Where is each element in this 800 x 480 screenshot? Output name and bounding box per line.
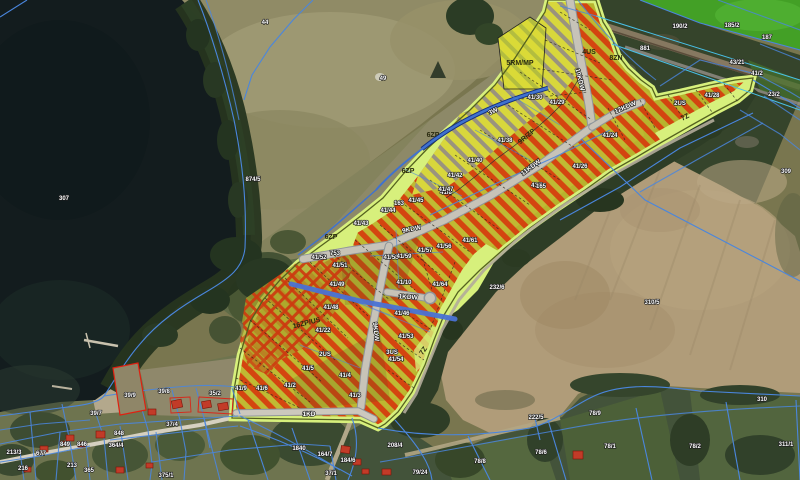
svg-text:41/2: 41/2: [284, 383, 296, 389]
svg-text:187: 187: [762, 35, 773, 41]
svg-text:78/2: 78/2: [689, 444, 701, 450]
svg-text:2US: 2US: [674, 101, 686, 107]
svg-text:41/30: 41/30: [527, 95, 543, 101]
svg-text:49: 49: [380, 76, 387, 82]
svg-text:41/6: 41/6: [256, 386, 268, 392]
svg-text:677: 677: [36, 451, 47, 457]
svg-text:41/5: 41/5: [302, 366, 314, 372]
svg-text:41/54: 41/54: [388, 357, 404, 363]
svg-text:849: 849: [60, 442, 71, 448]
svg-text:881: 881: [640, 46, 651, 52]
svg-text:41/64: 41/64: [432, 282, 448, 288]
svg-text:41/46: 41/46: [394, 311, 410, 317]
svg-text:41/28: 41/28: [704, 93, 720, 99]
svg-text:41/4: 41/4: [339, 373, 351, 379]
svg-text:1KDW: 1KDW: [398, 293, 418, 301]
svg-text:41/29: 41/29: [549, 100, 565, 106]
svg-text:8ZN: 8ZN: [609, 55, 622, 62]
svg-text:216: 216: [18, 466, 29, 472]
svg-text:35/2: 35/2: [209, 391, 221, 397]
svg-text:3US: 3US: [386, 350, 398, 356]
svg-text:213/3: 213/3: [6, 450, 22, 456]
svg-text:78/9: 78/9: [589, 411, 601, 417]
svg-text:41/38: 41/38: [497, 138, 513, 144]
svg-text:41/61: 41/61: [462, 238, 478, 244]
svg-text:23/2: 23/2: [768, 92, 780, 98]
svg-text:213: 213: [67, 463, 78, 469]
svg-text:41/42: 41/42: [447, 173, 463, 179]
svg-text:43/21: 43/21: [729, 60, 745, 66]
svg-text:41/44: 41/44: [380, 208, 396, 214]
svg-text:846: 846: [77, 442, 88, 448]
svg-text:78/1: 78/1: [604, 444, 616, 450]
svg-text:163: 163: [394, 201, 405, 207]
svg-text:164/7: 164/7: [317, 452, 333, 458]
svg-text:39/7: 39/7: [90, 411, 102, 417]
svg-text:309: 309: [781, 169, 792, 175]
svg-text:184/6: 184/6: [340, 458, 356, 464]
svg-text:307: 307: [59, 196, 70, 202]
svg-text:41/10: 41/10: [396, 280, 412, 286]
svg-text:41/48: 41/48: [323, 305, 339, 311]
svg-text:222/5: 222/5: [528, 415, 544, 421]
svg-text:311/1: 311/1: [779, 442, 794, 448]
svg-text:1840: 1840: [292, 446, 306, 452]
svg-text:848: 848: [114, 431, 125, 437]
svg-text:2US: 2US: [319, 352, 331, 358]
svg-text:41/52: 41/52: [311, 255, 327, 261]
svg-text:365: 365: [84, 468, 95, 474]
svg-text:41/40: 41/40: [467, 158, 483, 164]
svg-text:310/5: 310/5: [644, 300, 660, 306]
svg-text:37/4: 37/4: [166, 422, 178, 428]
svg-text:39/9: 39/9: [124, 393, 136, 399]
svg-text:41/47: 41/47: [438, 187, 454, 193]
svg-text:6ZP: 6ZP: [325, 234, 338, 241]
svg-text:39/8: 39/8: [158, 389, 170, 395]
svg-text:6ZP: 6ZP: [402, 168, 415, 175]
svg-text:41/56: 41/56: [436, 244, 452, 250]
svg-text:232/6: 232/6: [489, 285, 505, 291]
svg-text:41/49: 41/49: [329, 282, 345, 288]
svg-text:208/4: 208/4: [387, 443, 403, 449]
svg-text:310: 310: [757, 397, 768, 403]
svg-text:4US: 4US: [582, 49, 596, 56]
svg-text:5RM/MP: 5RM/MP: [506, 60, 534, 67]
svg-text:41/2: 41/2: [751, 71, 763, 77]
svg-text:364/4: 364/4: [108, 443, 124, 449]
svg-text:41/43: 41/43: [353, 221, 369, 227]
svg-text:6ZP: 6ZP: [427, 132, 440, 139]
svg-text:165: 165: [536, 184, 547, 190]
svg-text:41/24: 41/24: [602, 133, 618, 139]
svg-text:1KD: 1KD: [302, 411, 315, 418]
svg-text:375/1: 375/1: [158, 473, 174, 479]
svg-text:41/57: 41/57: [417, 248, 433, 254]
svg-text:79/24: 79/24: [412, 470, 428, 476]
svg-text:41/26: 41/26: [572, 164, 588, 170]
svg-text:41/53: 41/53: [398, 334, 414, 340]
svg-text:37/1: 37/1: [325, 471, 337, 477]
svg-text:44: 44: [262, 20, 269, 26]
svg-text:41/51: 41/51: [332, 263, 348, 269]
svg-text:41/9: 41/9: [235, 386, 247, 392]
svg-text:41/45: 41/45: [408, 198, 424, 204]
svg-text:78/8: 78/8: [474, 459, 486, 465]
svg-text:753: 753: [330, 251, 341, 257]
svg-text:78/6: 78/6: [535, 450, 547, 456]
svg-text:185/2: 185/2: [724, 23, 740, 29]
svg-text:41/22: 41/22: [315, 328, 331, 334]
svg-text:41/3: 41/3: [349, 393, 361, 399]
svg-text:190/2: 190/2: [672, 24, 688, 30]
svg-text:874/5: 874/5: [245, 177, 261, 183]
svg-text:41/59: 41/59: [396, 254, 412, 260]
